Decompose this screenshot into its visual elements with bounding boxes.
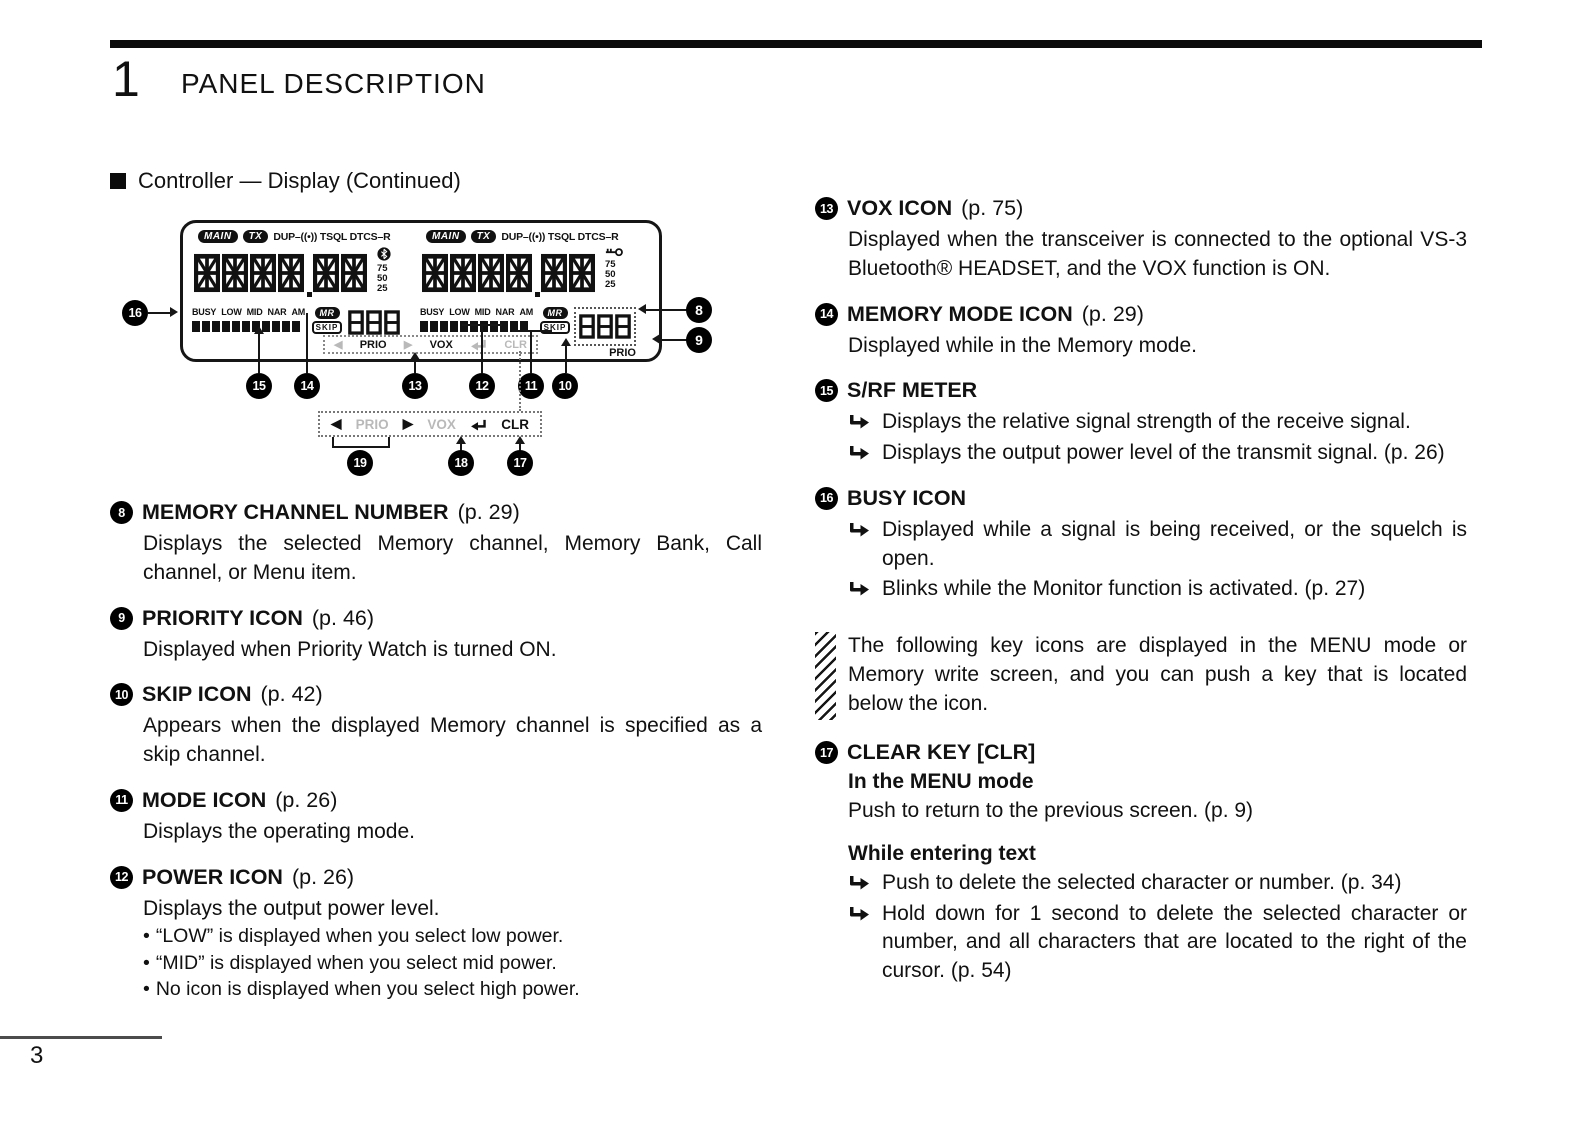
bullet-dot: • [143, 950, 150, 977]
item-body: Displays the operating mode. [143, 818, 762, 847]
item-title: PRIORITY ICON [142, 606, 303, 631]
right-arrow-icon: ▶ [404, 338, 412, 351]
nar-label: NAR [268, 307, 287, 317]
callout-line [306, 313, 308, 373]
callout-arrow [170, 307, 178, 317]
bullet-item: • No icon is displayed when you select h… [143, 976, 762, 1003]
left-column: 8 MEMORY CHANNEL NUMBER (p. 29) Displays… [110, 500, 762, 1021]
enter-key-icon [470, 338, 487, 351]
frequency-digits: 75 50 25 [422, 247, 648, 303]
segment-digit-icon [506, 247, 532, 299]
seven-seg-digit-icon [597, 311, 613, 342]
segment-digit-icon [569, 247, 595, 299]
bluetooth-icon [377, 247, 391, 261]
vox-key-label: VOX [430, 339, 453, 351]
meter-scale: 75 50 25 [377, 264, 388, 294]
left-arrow-icon: ◀ [334, 338, 342, 351]
item-busy-icon: 16 BUSY ICON Displayed while a signal is… [815, 486, 1467, 604]
callout-line [565, 346, 567, 373]
clr-key-label: CLR [501, 417, 529, 432]
left-arrow-icon: ◀ [331, 416, 341, 432]
item-title: S/RF METER [847, 378, 977, 403]
prio-key-label: PRIO [360, 339, 387, 351]
vox-key-label: VOX [427, 417, 456, 432]
segment-digit-icon [341, 247, 367, 299]
external-key-icon-row: ◀ PRIO ▶ VOX CLR [318, 411, 542, 437]
callout-line [644, 309, 688, 311]
am-label: AM [519, 307, 533, 317]
busy-label: BUSY [192, 307, 216, 317]
callout-10: 10 [552, 373, 578, 399]
item-skip-icon: 10 SKIP ICON (p. 42) Appears when the di… [110, 682, 762, 770]
item-mode-icon: 11 MODE ICON (p. 26) Displays the operat… [110, 788, 762, 847]
right-column: 13 VOX ICON (p. 75) Displayed when the t… [815, 196, 1467, 1004]
clr-key-label: CLR [504, 339, 527, 351]
callout-arrow [561, 338, 571, 346]
scale-25: 25 [605, 280, 616, 290]
bullet-text: “LOW” is displayed when you select low p… [156, 923, 564, 950]
section-title: Controller — Display (Continued) [138, 168, 461, 194]
busy-label: BUSY [420, 307, 444, 317]
arrow-point: Displayed while a signal is being receiv… [848, 516, 1467, 574]
header-rule [110, 40, 1482, 48]
lcd-top-labels: DUP–((•)) TSQL DTCS–R [501, 231, 618, 243]
arrow-point: Blinks while the Monitor function is act… [848, 575, 1467, 604]
item-number-badge: 9 [110, 607, 133, 630]
note-text: The following key icons are displayed in… [848, 632, 1467, 720]
callout-11: 11 [518, 373, 544, 399]
item-number-badge: 13 [815, 197, 838, 220]
callout-8: 8 [686, 297, 712, 323]
item-number-badge: 8 [110, 501, 133, 524]
note-block: The following key icons are displayed in… [815, 632, 1467, 720]
segment-digit-icon [222, 247, 248, 299]
scale-25: 25 [377, 284, 388, 294]
arrow-bullet-icon [848, 522, 870, 537]
item-title: BUSY ICON [847, 486, 966, 511]
callout-15: 15 [246, 373, 272, 399]
page-reference: (p. 26) [292, 865, 354, 890]
item-number-badge: 15 [815, 379, 838, 402]
item-vox-icon: 13 VOX ICON (p. 75) Displayed when the t… [815, 196, 1467, 284]
callout-line [512, 330, 552, 332]
bullet-text: “MID” is displayed when you select mid p… [156, 950, 557, 977]
callout-line [658, 339, 688, 341]
item-title: SKIP ICON [142, 682, 252, 707]
frequency-digits: 75 50 25 [194, 247, 420, 303]
callout-arrow [410, 352, 420, 360]
item-srf-meter: 15 S/RF METER Displays the relative sign… [815, 378, 1467, 468]
callout-16: 16 [122, 300, 148, 326]
item-number-badge: 12 [110, 866, 133, 889]
callout-line [258, 334, 260, 373]
subheading-entering-text: While entering text [848, 842, 1467, 866]
seven-seg-digit-icon [384, 307, 400, 338]
item-number-badge: 14 [815, 303, 838, 326]
item-number-badge: 11 [110, 789, 133, 812]
segment-digit-icon [313, 247, 339, 299]
am-label: AM [291, 307, 305, 317]
arrow-point: Displays the output power level of the t… [848, 439, 1467, 468]
item-number-badge: 17 [815, 741, 838, 764]
low-label: LOW [449, 307, 469, 317]
callout-line [414, 360, 416, 373]
page-reference: (p. 29) [458, 500, 520, 525]
callout-9: 9 [686, 327, 712, 353]
mid-label: MID [247, 307, 263, 317]
prio-label: PRIO [609, 347, 636, 359]
subheading-menu-mode: In the MENU mode [848, 770, 1467, 794]
arrow-bullet-icon [848, 875, 870, 890]
arrow-bullet-icon [848, 414, 870, 429]
callout-arrow [254, 326, 264, 334]
meter-scale: 75 50 25 [605, 260, 616, 290]
item-title: MEMORY CHANNEL NUMBER [142, 500, 449, 525]
prio-key-label: PRIO [356, 417, 389, 432]
callout-line [530, 330, 532, 373]
s-rf-meter [192, 321, 310, 332]
lcd-display: MAIN TX DUP–((•)) TSQL DTCS–R [180, 220, 662, 362]
segment-digit-icon [250, 247, 276, 299]
item-title: MEMORY MODE ICON [847, 302, 1073, 327]
callout-arrow [515, 436, 525, 444]
callout-arrow [638, 304, 646, 314]
item-priority-icon: 9 PRIORITY ICON (p. 46) Displayed when P… [110, 606, 762, 665]
manual-page: 1 PANEL DESCRIPTION Controller — Display… [0, 0, 1592, 1122]
tx-badge: TX [243, 230, 269, 243]
page-reference: (p. 42) [261, 682, 323, 707]
decimal-point-icon [307, 292, 312, 297]
memory-channel-digits-highlight [574, 307, 636, 346]
footer-rule [0, 1036, 162, 1039]
main-badge: MAIN [198, 230, 238, 243]
arrow-point: Hold down for 1 second to delete the sel… [848, 900, 1467, 986]
bullet-text: No icon is displayed when you select hig… [156, 976, 580, 1003]
bullet-dot: • [143, 976, 150, 1003]
seven-seg-digit-icon [366, 307, 382, 338]
item-title: MODE ICON [142, 788, 266, 813]
status-labels: BUSY LOW MID NAR AM [192, 307, 310, 317]
page-number: 3 [30, 1042, 43, 1070]
segment-digit-icon [541, 247, 567, 299]
callout-arrow [652, 334, 660, 344]
item-memory-mode-icon: 14 MEMORY MODE ICON (p. 29) Displayed wh… [815, 302, 1467, 361]
page-title: PANEL DESCRIPTION [181, 68, 486, 100]
item-clear-key: 17 CLEAR KEY [CLR] In the MENU mode Push… [815, 740, 1467, 986]
item-body: Displayed when the transceiver is connec… [848, 226, 1467, 284]
callout-arrow [456, 436, 466, 444]
key-lock-icon [605, 247, 623, 257]
lcd-top-labels: DUP–((•)) TSQL DTCS–R [273, 231, 390, 243]
item-body: Appears when the displayed Memory channe… [143, 712, 762, 770]
segment-digit-icon [194, 247, 220, 299]
item-body: Displayed when Priority Watch is turned … [143, 636, 762, 665]
callout-13: 13 [402, 373, 428, 399]
callout-19: 19 [347, 450, 373, 476]
arrow-bullet-icon [848, 906, 870, 921]
segment-digit-icon [278, 247, 304, 299]
seven-seg-digit-icon [615, 311, 631, 342]
bullet-item: • “LOW” is displayed when you select low… [143, 923, 762, 950]
main-badge: MAIN [426, 230, 466, 243]
seven-seg-digit-icon [579, 311, 595, 342]
seven-seg-digit-icon [348, 307, 364, 338]
item-title: VOX ICON [847, 196, 952, 221]
badge-row: MAIN TX DUP–((•)) TSQL DTCS–R [426, 229, 648, 244]
note-hatch-bar-icon [815, 632, 836, 720]
item-power-icon: 12 POWER ICON (p. 26) Displays the outpu… [110, 865, 762, 1003]
item-memory-channel-number: 8 MEMORY CHANNEL NUMBER (p. 29) Displays… [110, 500, 762, 588]
segment-digit-icon [478, 247, 504, 299]
callout-12: 12 [469, 373, 495, 399]
callout-18: 18 [448, 450, 474, 476]
status-labels: BUSY LOW MID NAR AM [420, 307, 538, 317]
mr-badge: MR [543, 307, 568, 319]
item-body: Displays the selected Memory channel, Me… [143, 530, 762, 588]
arrow-point: Displays the relative signal strength of… [848, 408, 1467, 437]
badge-row: MAIN TX DUP–((•)) TSQL DTCS–R [198, 229, 420, 244]
lcd-key-icon-row: ◀ PRIO ▶ VOX CLR [323, 335, 538, 354]
lcd-diagram: MAIN TX DUP–((•)) TSQL DTCS–R [110, 205, 770, 495]
right-arrow-icon: ▶ [403, 416, 413, 432]
chapter-number: 1 [112, 54, 140, 104]
skip-badge: SKIP [312, 321, 343, 334]
callout-17: 17 [507, 450, 533, 476]
callout-line [481, 324, 483, 373]
callout-14: 14 [294, 373, 320, 399]
page-reference: (p. 75) [961, 196, 1023, 221]
arrow-bullet-icon [848, 581, 870, 596]
page-reference: (p. 29) [1082, 302, 1144, 327]
bullet-dot: • [143, 923, 150, 950]
page-reference: (p. 46) [312, 606, 374, 631]
mid-label: MID [475, 307, 491, 317]
item-title: POWER ICON [142, 865, 283, 890]
item-body: Push to return to the previous screen. (… [848, 797, 1467, 826]
item-number-badge: 16 [815, 487, 838, 510]
arrow-bullet-icon [848, 445, 870, 460]
section-square-bullet-icon [110, 173, 126, 189]
nar-label: NAR [496, 307, 515, 317]
dotted-connector [519, 351, 521, 411]
segment-digit-icon [450, 247, 476, 299]
item-number-badge: 10 [110, 683, 133, 706]
side-column: 75 50 25 [601, 247, 627, 290]
bullet-item: • “MID” is displayed when you select mid… [143, 950, 762, 977]
decimal-point-icon [535, 292, 540, 297]
segment-digit-icon [422, 247, 448, 299]
side-column: 75 50 25 [373, 247, 399, 294]
mr-badge: MR [315, 307, 340, 319]
enter-key-icon [470, 418, 487, 431]
arrow-point: Push to delete the selected character or… [848, 869, 1467, 898]
memory-channel-digits [348, 307, 400, 338]
callout-line [332, 446, 390, 448]
page-reference: (p. 26) [275, 788, 337, 813]
section-heading: Controller — Display (Continued) [110, 168, 461, 194]
item-body: Displayed while in the Memory mode. [848, 332, 1467, 361]
skip-badge: SKIP [540, 321, 571, 334]
item-body: Displays the output power level. [143, 895, 762, 924]
tx-badge: TX [471, 230, 497, 243]
item-title: CLEAR KEY [CLR] [847, 740, 1035, 765]
low-label: LOW [221, 307, 241, 317]
